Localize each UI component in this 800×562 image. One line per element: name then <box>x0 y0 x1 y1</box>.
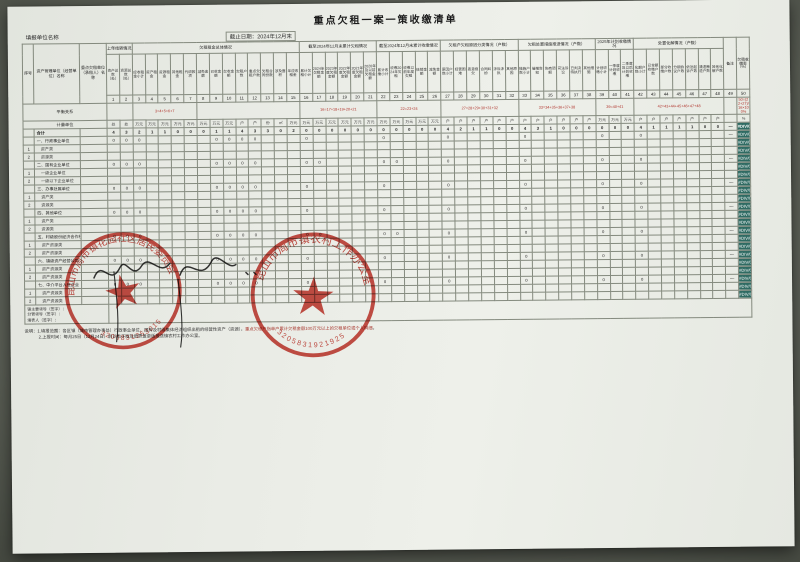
value-cell <box>223 191 236 199</box>
value-cell <box>172 176 185 184</box>
value-cell <box>392 293 405 301</box>
value-cell <box>133 176 146 184</box>
row-number <box>24 185 35 193</box>
value-cell <box>649 291 662 299</box>
value-cell <box>198 207 211 215</box>
row-number: 1 <box>24 217 35 225</box>
column-header: 2022年度欠租金额 <box>338 52 351 93</box>
value-cell <box>146 192 159 200</box>
value-cell: 0 <box>223 135 236 143</box>
value-cell <box>378 174 391 182</box>
value-cell <box>455 173 468 181</box>
value-cell: 0 <box>711 122 724 130</box>
value-cell <box>493 180 506 188</box>
value-cell: 4 <box>634 123 647 131</box>
value-cell <box>480 157 493 165</box>
column-header: 资产租金 <box>145 54 158 95</box>
value-cell <box>339 198 352 206</box>
value-cell <box>211 215 224 223</box>
value-cell <box>687 227 700 235</box>
value-cell <box>146 168 159 176</box>
value-cell: 0 <box>621 123 634 131</box>
value-cell <box>481 189 494 197</box>
value-cell <box>249 175 262 183</box>
formula-cell <box>107 103 133 120</box>
value-cell <box>313 166 326 174</box>
value-cell <box>674 259 687 267</box>
value-cell <box>288 214 301 222</box>
value-cell <box>635 235 648 243</box>
value-cell <box>648 187 661 195</box>
value-cell <box>456 277 469 285</box>
value-cell <box>545 172 558 180</box>
column-header: 应收租金小计 <box>132 54 145 95</box>
value-cell <box>636 267 649 275</box>
value-cell <box>159 176 172 184</box>
value-cell <box>390 141 403 149</box>
value-cell <box>390 181 403 189</box>
value-cell <box>610 275 623 283</box>
value-cell <box>674 267 687 275</box>
value-cell <box>404 213 417 221</box>
value-cell <box>236 191 249 199</box>
value-cell <box>236 175 249 183</box>
tenant-cell <box>81 192 108 200</box>
value-cell <box>429 141 442 149</box>
value-cell: #DIV/0! <box>739 274 752 282</box>
value-cell <box>533 252 546 260</box>
value-cell <box>674 251 687 259</box>
unit-cell: 万元 <box>184 119 197 127</box>
value-cell <box>301 214 314 222</box>
value-cell <box>557 156 570 164</box>
value-cell <box>571 212 584 220</box>
value-cell: 0 <box>211 231 224 239</box>
value-cell: 0 <box>339 126 352 134</box>
unit-cell: 户 <box>531 116 544 124</box>
value-cell <box>378 270 391 278</box>
value-cell: 0 <box>120 184 133 192</box>
value-cell <box>506 180 519 188</box>
value-cell <box>262 143 275 151</box>
row-number: 2 <box>24 225 35 233</box>
value-cell <box>558 220 571 228</box>
value-cell <box>223 167 236 175</box>
value-cell <box>623 291 636 299</box>
value-cell: 0 <box>211 207 224 215</box>
value-cell: 0 <box>596 124 609 132</box>
value-cell: 0 <box>596 179 609 187</box>
value-cell <box>700 291 713 299</box>
column-number: 23 <box>390 92 403 100</box>
value-cell: 1 <box>686 123 699 131</box>
value-cell <box>545 236 558 244</box>
value-cell <box>300 174 313 182</box>
value-cell <box>390 165 403 173</box>
value-cell <box>468 213 481 221</box>
value-cell <box>597 283 610 291</box>
value-cell: 0 <box>377 158 390 166</box>
value-cell <box>468 181 481 189</box>
value-cell <box>172 216 185 224</box>
column-header: 欠租合同份数 <box>261 53 274 94</box>
value-cell <box>468 229 481 237</box>
value-cell <box>120 168 133 176</box>
value-cell <box>223 151 236 159</box>
value-cell <box>661 235 674 243</box>
value-cell <box>623 243 636 251</box>
column-header: 欠租户数 <box>235 53 248 94</box>
value-cell: 0 <box>519 156 532 164</box>
value-cell <box>404 245 417 253</box>
unit-cell: 万元 <box>390 117 403 125</box>
value-cell <box>622 219 635 227</box>
row-number: 1 <box>24 265 35 273</box>
value-cell <box>635 187 648 195</box>
value-cell: 0 <box>223 159 236 167</box>
value-cell: 1 <box>544 124 557 132</box>
value-cell <box>429 197 442 205</box>
value-cell: 4 <box>519 124 532 132</box>
column-group-header: 处置化解情况（户数） <box>633 37 723 49</box>
row-number: 2 <box>24 273 35 281</box>
value-cell <box>649 283 662 291</box>
value-cell <box>133 144 146 152</box>
value-cell: 0 <box>597 251 610 259</box>
column-number: 1 <box>107 95 120 103</box>
value-cell <box>403 157 416 165</box>
value-cell: 0 <box>390 157 403 165</box>
unit-cell: 万元 <box>197 119 210 127</box>
value-cell <box>700 275 713 283</box>
value-cell <box>506 172 519 180</box>
formula-cell: 27=28+29+30+31+32 <box>441 99 518 117</box>
value-cell <box>365 198 378 206</box>
value-cell <box>287 142 300 150</box>
value-cell <box>287 134 300 142</box>
value-cell <box>417 237 430 245</box>
value-cell <box>455 253 468 261</box>
value-cell <box>546 284 559 292</box>
value-cell <box>507 236 520 244</box>
value-cell <box>597 291 610 299</box>
value-cell: #DIV/0! <box>739 290 752 298</box>
value-cell <box>674 203 687 211</box>
value-cell <box>455 245 468 253</box>
value-cell <box>686 203 699 211</box>
value-cell <box>185 215 198 223</box>
column-group-header: 上年结转情况 <box>106 43 132 54</box>
value-cell <box>506 148 519 156</box>
column-number: 49 <box>724 89 737 97</box>
column-header: 分期协议户数 <box>672 49 685 90</box>
value-cell <box>648 259 661 267</box>
value-cell <box>622 171 635 179</box>
value-cell <box>391 285 404 293</box>
value-cell <box>391 277 404 285</box>
value-cell: 3 <box>531 124 544 132</box>
value-cell <box>469 293 482 301</box>
value-cell: 0 <box>506 124 519 132</box>
value-cell <box>725 234 738 242</box>
value-cell <box>417 293 430 301</box>
value-cell <box>364 134 377 142</box>
column-number: 50 <box>737 89 750 97</box>
value-cell <box>236 199 249 207</box>
value-cell <box>326 190 339 198</box>
value-cell <box>674 195 687 203</box>
column-number: 14 <box>274 94 287 102</box>
value-cell: 1 <box>673 123 686 131</box>
value-cell <box>493 156 506 164</box>
value-cell <box>379 294 392 302</box>
value-cell <box>673 187 686 195</box>
value-cell <box>159 144 172 152</box>
value-cell: 0 <box>184 127 197 135</box>
value-cell <box>236 143 249 151</box>
column-number: 32 <box>505 91 518 99</box>
value-cell <box>699 195 712 203</box>
pen-stroke <box>114 272 118 342</box>
value-cell: 0 <box>300 158 313 166</box>
column-header: 收缴2024年欠租 <box>389 51 402 92</box>
value-cell: #DIV/0! <box>737 146 750 154</box>
value-cell <box>687 235 700 243</box>
value-cell <box>571 220 584 228</box>
value-cell <box>686 139 699 147</box>
value-cell <box>712 194 725 202</box>
value-cell <box>249 151 262 159</box>
table-header: 序号资产管理单位（经营单位）名称重点欠租单位（承租人）名称上年结转情况欠租租金总… <box>22 37 750 104</box>
column-header: 协商调解 <box>544 50 557 91</box>
formula-cell: 39=40+41 <box>595 98 634 115</box>
value-cell <box>133 152 146 160</box>
value-cell <box>417 245 430 253</box>
column-header: 其他措施 <box>582 50 595 91</box>
value-cell <box>430 269 443 277</box>
value-cell <box>416 189 429 197</box>
value-cell <box>404 277 417 285</box>
value-cell <box>570 140 583 148</box>
value-cell <box>571 276 584 284</box>
value-cell <box>197 167 210 175</box>
value-cell <box>700 227 713 235</box>
value-cell <box>197 159 210 167</box>
value-cell <box>713 242 726 250</box>
unit-cell: 户 <box>467 117 480 125</box>
value-cell <box>660 155 673 163</box>
value-cell: — <box>724 130 737 138</box>
value-cell <box>339 190 352 198</box>
value-cell <box>635 195 648 203</box>
value-cell <box>648 227 661 235</box>
value-cell <box>482 285 495 293</box>
value-cell <box>726 258 739 266</box>
tenant-cell <box>80 128 107 136</box>
value-cell <box>623 259 636 267</box>
value-cell <box>352 214 365 222</box>
value-cell: 0 <box>597 227 610 235</box>
value-cell: 0 <box>520 252 533 260</box>
value-cell <box>288 174 301 182</box>
value-cell: 0 <box>519 204 532 212</box>
row-number: 2 <box>24 249 35 257</box>
value-cell <box>223 199 236 207</box>
value-cell <box>261 135 274 143</box>
column-number: 3 <box>132 95 145 103</box>
value-cell <box>249 199 262 207</box>
unit-cell: 万元 <box>313 118 326 126</box>
value-cell <box>403 165 416 173</box>
unit-cell: 万元 <box>326 118 339 126</box>
value-cell <box>700 243 713 251</box>
value-cell <box>506 156 519 164</box>
value-cell: 0 <box>442 181 455 189</box>
value-cell <box>159 136 172 144</box>
value-cell <box>571 268 584 276</box>
value-cell <box>507 228 520 236</box>
value-cell: 0 <box>108 184 121 192</box>
value-cell <box>661 267 674 275</box>
value-cell: 0 <box>378 254 391 262</box>
formula-cell: 33=34+35+36+37+38 <box>518 99 595 117</box>
value-cell <box>700 235 713 243</box>
value-cell <box>584 276 597 284</box>
value-cell <box>430 293 443 301</box>
column-header: 化解户数小计 <box>634 49 647 90</box>
value-cell <box>609 211 622 219</box>
value-cell: 0 <box>635 155 648 163</box>
value-cell <box>146 136 159 144</box>
unit-cell: 处 <box>120 120 133 128</box>
value-cell <box>507 260 520 268</box>
value-cell: 0 <box>108 208 121 216</box>
tenant-cell <box>81 200 108 208</box>
value-cell <box>699 155 712 163</box>
column-number: 46 <box>685 90 698 98</box>
value-cell <box>146 200 159 208</box>
column-header: 重点欠租户数 <box>248 53 261 94</box>
value-cell <box>700 267 713 275</box>
value-cell <box>430 237 443 245</box>
value-cell: 0 <box>442 205 455 213</box>
value-cell <box>506 204 519 212</box>
value-cell <box>339 150 352 158</box>
value-cell <box>623 275 636 283</box>
unit-cell: 户 <box>441 117 454 125</box>
column-number: 44 <box>660 90 673 98</box>
value-cell <box>185 175 198 183</box>
value-cell <box>442 173 455 181</box>
value-cell <box>313 198 326 206</box>
value-cell: 3 <box>261 127 274 135</box>
value-cell <box>674 283 687 291</box>
value-cell <box>545 188 558 196</box>
value-cell <box>610 235 623 243</box>
value-cell <box>557 132 570 140</box>
value-cell <box>417 229 430 237</box>
value-cell <box>352 142 365 150</box>
value-cell <box>558 188 571 196</box>
value-cell <box>674 211 687 219</box>
value-cell <box>108 192 121 200</box>
value-cell <box>622 235 635 243</box>
value-cell <box>558 204 571 212</box>
value-cell <box>198 175 211 183</box>
value-cell <box>712 210 725 218</box>
value-cell <box>327 214 340 222</box>
value-cell <box>544 132 557 140</box>
value-cell <box>700 259 713 267</box>
value-cell <box>584 284 597 292</box>
value-cell <box>649 275 662 283</box>
value-cell <box>430 277 443 285</box>
value-cell <box>107 152 120 160</box>
value-cell <box>172 184 185 192</box>
value-cell <box>699 187 712 195</box>
value-cell: 0 <box>210 135 223 143</box>
value-cell <box>172 152 185 160</box>
value-cell <box>661 227 674 235</box>
value-cell <box>623 251 636 259</box>
value-cell <box>571 252 584 260</box>
value-cell: 0 <box>237 231 250 239</box>
value-cell: 0 <box>391 229 404 237</box>
value-cell <box>172 208 185 216</box>
value-cell <box>673 147 686 155</box>
value-cell <box>455 181 468 189</box>
value-cell <box>609 139 622 147</box>
column-header: 一季度计划收缴 <box>608 49 621 90</box>
value-cell <box>621 131 634 139</box>
value-cell <box>725 194 738 202</box>
value-cell <box>480 173 493 181</box>
value-cell <box>352 174 365 182</box>
column-group-header: 截至2024年12月末累计欠租情况 <box>299 41 376 53</box>
value-cell <box>365 222 378 230</box>
value-cell: 0 <box>519 180 532 188</box>
value-cell <box>725 210 738 218</box>
value-cell: 0 <box>210 183 223 191</box>
value-cell <box>481 253 494 261</box>
value-cell <box>430 261 443 269</box>
value-cell <box>210 151 223 159</box>
column-number: 28 <box>454 92 467 100</box>
value-cell <box>121 192 134 200</box>
column-number: 42 <box>634 90 647 98</box>
value-cell <box>583 132 596 140</box>
value-cell <box>506 188 519 196</box>
value-cell <box>313 150 326 158</box>
value-cell <box>584 292 597 300</box>
value-cell: 4 <box>236 127 249 135</box>
value-cell <box>596 187 609 195</box>
value-cell <box>584 212 597 220</box>
value-cell: 0 <box>236 159 249 167</box>
value-cell <box>622 179 635 187</box>
value-cell: — <box>725 154 738 162</box>
value-cell <box>390 173 403 181</box>
value-cell <box>108 200 121 208</box>
value-cell <box>584 244 597 252</box>
unit-cell: 万元 <box>416 117 429 125</box>
value-cell <box>314 206 327 214</box>
value-cell: 0 <box>313 158 326 166</box>
value-cell <box>520 284 533 292</box>
photo-background: { "page": { "title": "重点欠租一案一策收缴清单", "fo… <box>0 0 800 562</box>
value-cell: #DIV/0! <box>739 266 752 274</box>
value-cell <box>494 244 507 252</box>
